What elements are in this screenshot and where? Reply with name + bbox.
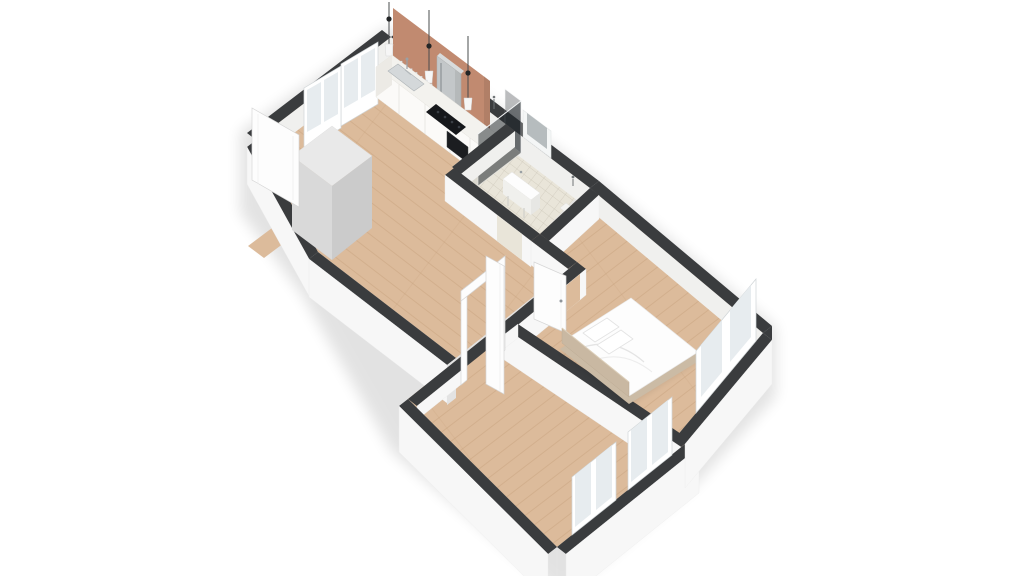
pendant-dot (386, 16, 391, 21)
balcony-door-left-pane (307, 82, 321, 132)
balcony-door-right-pane (344, 58, 358, 108)
door-jamb (461, 286, 467, 385)
door-handle (560, 300, 563, 303)
pendant-dot (465, 70, 470, 75)
floor-plan-3d (0, 0, 1024, 576)
balcony-door-left-pane (324, 72, 338, 122)
pendant-shade (464, 98, 472, 110)
pendant-dot (426, 43, 431, 48)
basin-faucet (520, 171, 523, 174)
balcony-door-right-pane (361, 48, 375, 98)
floor-plan-canvas (0, 0, 1024, 576)
pendant-shade (385, 44, 393, 56)
living-room-door (486, 256, 504, 394)
